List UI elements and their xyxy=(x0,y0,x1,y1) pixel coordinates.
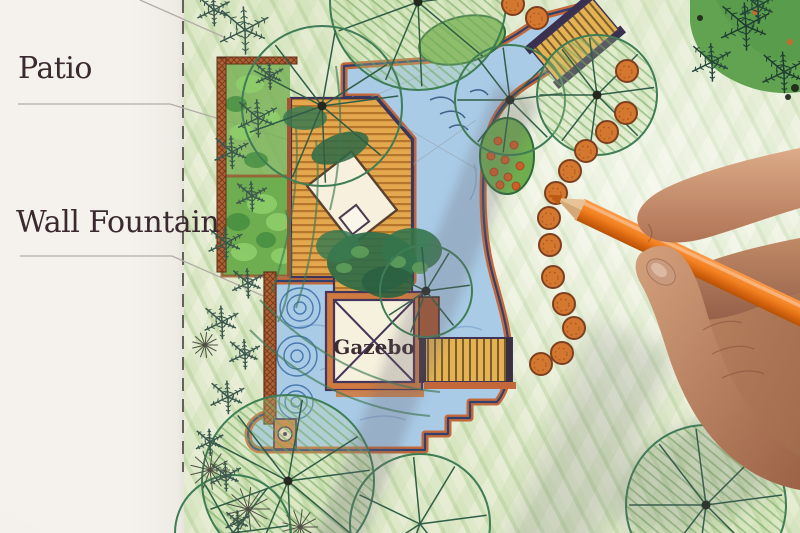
patio-label: Patio xyxy=(18,54,92,84)
hand-with-pencil xyxy=(0,0,800,533)
wall-fountain-label: Wall Fountain xyxy=(16,208,219,238)
photo-landscape-plan: Gazebo xyxy=(0,0,800,533)
index-finger xyxy=(637,148,800,242)
